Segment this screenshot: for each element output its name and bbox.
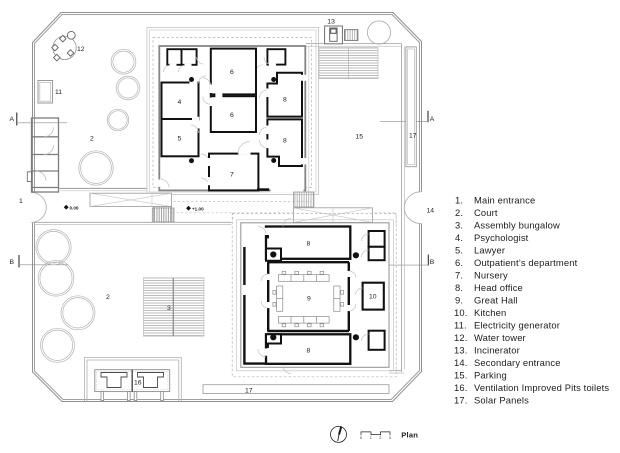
svg-text:12.: 12.: [454, 332, 467, 343]
svg-text:Ventilation Improved Pits toil: Ventilation Improved Pits toilets: [474, 382, 609, 393]
svg-text:2.: 2.: [455, 207, 463, 218]
svg-text:6: 6: [230, 69, 234, 76]
svg-text:Psychologist: Psychologist: [474, 232, 529, 243]
svg-text:14: 14: [427, 208, 435, 215]
svg-text:11: 11: [55, 89, 62, 96]
svg-text:13.: 13.: [454, 344, 467, 355]
svg-text:Main entrance: Main entrance: [474, 194, 535, 205]
svg-text:1: 1: [19, 198, 23, 205]
svg-text:7.: 7.: [455, 269, 463, 280]
svg-text:14.: 14.: [454, 357, 467, 368]
svg-text:Nursery: Nursery: [474, 269, 508, 280]
svg-text:5.: 5.: [455, 244, 463, 255]
svg-text:5: 5: [178, 136, 182, 143]
svg-text:Head office: Head office: [474, 282, 523, 293]
svg-text:3: 3: [167, 305, 171, 312]
svg-text:16: 16: [134, 380, 142, 387]
svg-text:8: 8: [283, 138, 287, 145]
svg-text:+1.00: +1.00: [192, 207, 204, 212]
svg-text:Kitchen: Kitchen: [474, 307, 506, 318]
svg-text:9: 9: [307, 296, 311, 303]
svg-text:Court: Court: [474, 207, 498, 218]
svg-text:17: 17: [409, 133, 417, 140]
svg-text:10: 10: [369, 294, 377, 301]
svg-text:2: 2: [379, 436, 381, 440]
svg-text:Assembly bungalow: Assembly bungalow: [474, 219, 560, 230]
svg-text:17.: 17.: [454, 394, 467, 405]
svg-text:16.: 16.: [454, 382, 467, 393]
svg-text:Secondary entrance: Secondary entrance: [474, 357, 561, 368]
svg-text:1: 1: [370, 436, 372, 440]
svg-text:Water tower: Water tower: [474, 332, 526, 343]
svg-text:Lawyer: Lawyer: [474, 244, 505, 255]
svg-text:6.: 6.: [455, 257, 463, 268]
svg-text:Incinerator: Incinerator: [474, 344, 520, 355]
svg-text:1.: 1.: [455, 194, 463, 205]
svg-text:Electricity generator: Electricity generator: [474, 319, 560, 330]
svg-text:3.: 3.: [455, 219, 463, 230]
svg-text:6: 6: [230, 112, 234, 119]
svg-text:10.: 10.: [454, 307, 467, 318]
svg-text:8: 8: [307, 241, 311, 248]
svg-text:0.00: 0.00: [70, 206, 79, 211]
svg-text:Great Hall: Great Hall: [474, 294, 518, 305]
svg-text:11.: 11.: [454, 319, 467, 330]
svg-text:A: A: [10, 116, 15, 123]
svg-text:13: 13: [327, 18, 335, 25]
svg-text:7: 7: [230, 172, 234, 179]
svg-text:Plan: Plan: [401, 430, 418, 439]
svg-text:4.: 4.: [455, 232, 463, 243]
svg-text:8: 8: [283, 97, 287, 104]
svg-text:A: A: [430, 116, 435, 123]
svg-text:12: 12: [77, 46, 85, 53]
svg-text:3: 3: [389, 436, 391, 440]
svg-text:15.: 15.: [454, 369, 467, 380]
svg-text:Solar Panels: Solar Panels: [474, 394, 529, 405]
svg-text:4: 4: [178, 99, 182, 106]
svg-text:B: B: [10, 259, 15, 266]
svg-text:9.: 9.: [455, 294, 463, 305]
svg-text:Parking: Parking: [474, 369, 507, 380]
svg-text:8.: 8.: [455, 282, 463, 293]
svg-text:2: 2: [90, 136, 94, 143]
svg-text:8: 8: [307, 348, 311, 355]
svg-text:15: 15: [356, 134, 364, 141]
svg-text:17: 17: [245, 388, 253, 395]
svg-text:B: B: [430, 259, 435, 266]
svg-text:2: 2: [106, 294, 110, 301]
svg-text:Outpatient’s department: Outpatient’s department: [474, 257, 578, 268]
svg-text:0: 0: [360, 436, 362, 440]
